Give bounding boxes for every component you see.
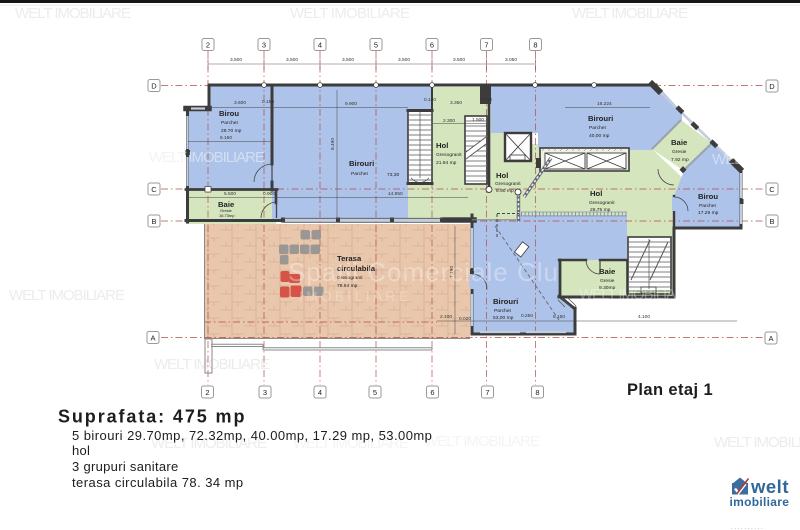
svg-text:7: 7 <box>485 388 489 397</box>
svg-text:26,75 mp: 26,75 mp <box>590 207 611 213</box>
svg-text:6.150: 6.150 <box>553 314 565 320</box>
svg-text:IMOBILIARE: IMOBILIARE <box>299 289 411 304</box>
svg-text:WELT IMOBILIARE: WELT IMOBILIARE <box>572 5 688 22</box>
svg-text:welt: welt <box>750 476 789 497</box>
svg-text:3.500: 3.500 <box>453 57 465 63</box>
svg-text:Birouri: Birouri <box>349 159 374 168</box>
svg-text:Gresie: Gresie <box>672 149 687 155</box>
svg-text:8.90 mp: 8.90 mp <box>496 188 514 194</box>
svg-text:Birouri: Birouri <box>588 114 613 123</box>
svg-text:WELT IMOBILIARE: WELT IMOBILIARE <box>579 286 695 303</box>
svg-text:3.600: 3.600 <box>234 100 246 106</box>
svg-text:WELT IMOBILIARE: WELT IMOBILIARE <box>9 287 125 304</box>
svg-text:B: B <box>151 217 156 226</box>
svg-text:Gresogranit: Gresogranit <box>495 181 521 187</box>
svg-text:21.94 mp: 21.94 mp <box>436 160 457 166</box>
svg-text:WELT IMOBILIARE: WELT IMOBILIARE <box>149 149 265 166</box>
svg-text:Birou: Birou <box>698 192 718 201</box>
svg-text:WELT IMOBILIARE: WELT IMOBILIARE <box>15 5 131 22</box>
svg-text:8: 8 <box>535 388 539 397</box>
svg-text:2: 2 <box>206 41 210 50</box>
svg-text:WELT IMOBILIARE: WELT IMOBILIARE <box>424 433 540 450</box>
svg-text:A: A <box>768 334 773 343</box>
svg-text:Gresie: Gresie <box>600 278 615 284</box>
svg-text:Parchet: Parchet <box>351 171 368 177</box>
svg-text:3.050: 3.050 <box>505 57 517 63</box>
svg-text:6: 6 <box>430 41 434 50</box>
svg-text:C: C <box>769 185 775 194</box>
svg-text:6.150: 6.150 <box>220 135 232 141</box>
svg-text:WELT IMOBILIARE: WELT IMOBILIARE <box>714 434 800 451</box>
svg-text:8: 8 <box>533 41 537 50</box>
svg-text:. . . . . . . . . .: . . . . . . . . . . <box>731 525 763 530</box>
svg-text:Baie: Baie <box>671 138 688 147</box>
svg-text:53,00 mp: 53,00 mp <box>493 315 514 321</box>
svg-text:Suprafata: 475 mp: Suprafata: 475 mp <box>58 407 246 427</box>
svg-text:B: B <box>769 217 774 226</box>
svg-text:16.73mp: 16.73mp <box>219 213 235 218</box>
svg-text:5 birouri 29.70mp, 72.32mp, 4: 5 birouri 29.70mp, 72.32mp, 40.00mp, 17.… <box>72 428 432 443</box>
svg-text:8.490: 8.490 <box>330 138 336 150</box>
svg-text:16.224: 16.224 <box>597 101 612 107</box>
svg-text:Parchet: Parchet <box>699 203 716 209</box>
svg-text:Parchet: Parchet <box>221 120 238 126</box>
svg-text:Baie: Baie <box>599 267 616 276</box>
svg-text:5.500: 5.500 <box>224 191 236 197</box>
svg-text:3: 3 <box>263 388 267 397</box>
svg-text:Parchet: Parchet <box>589 125 606 131</box>
svg-text:Gresogranit: Gresogranit <box>436 152 462 158</box>
svg-text:C: C <box>151 185 157 194</box>
svg-text:terasa circulabila 78. 34 mp: terasa circulabila 78. 34 mp <box>72 475 244 490</box>
svg-text:9.900: 9.900 <box>345 101 357 107</box>
svg-text:A: A <box>150 334 155 343</box>
svg-text:5: 5 <box>373 388 377 397</box>
svg-text:3.500: 3.500 <box>342 57 354 63</box>
svg-text:WELT IMOBILIARE: WELT IMOBILIARE <box>290 5 410 22</box>
svg-text:Parchet: Parchet <box>494 308 511 314</box>
svg-text:7.92 mp: 7.92 mp <box>671 157 689 163</box>
svg-text:D: D <box>769 82 775 91</box>
svg-text:0.150: 0.150 <box>262 99 274 105</box>
svg-text:0.020: 0.020 <box>459 316 471 322</box>
svg-text:3: 3 <box>262 41 266 50</box>
svg-text:Gresogranit: Gresogranit <box>589 200 615 206</box>
svg-text:5: 5 <box>374 41 378 50</box>
svg-text:Hol: Hol <box>590 189 602 198</box>
svg-text:29.70 mp: 29.70 mp <box>221 128 242 134</box>
svg-text:2.100: 2.100 <box>440 314 452 320</box>
svg-text:0.150: 0.150 <box>424 97 436 103</box>
svg-text:0.060: 0.060 <box>480 97 492 103</box>
svg-text:6: 6 <box>430 388 434 397</box>
svg-text:3.500: 3.500 <box>230 57 242 63</box>
svg-text:14.950: 14.950 <box>388 191 403 197</box>
svg-text:Hol: Hol <box>436 141 448 150</box>
svg-text:4: 4 <box>318 388 322 397</box>
svg-text:Spatii Comerciale Clu: Spatii Comerciale Clu <box>288 257 559 287</box>
svg-text:73,30: 73,30 <box>387 172 400 178</box>
svg-text:4: 4 <box>318 41 322 50</box>
svg-text:40,00 mp: 40,00 mp <box>589 133 610 139</box>
svg-text:1.500: 1.500 <box>472 117 484 123</box>
svg-text:3.500: 3.500 <box>286 57 298 63</box>
svg-text:2.300: 2.300 <box>443 118 455 124</box>
svg-text:hol: hol <box>72 443 90 458</box>
svg-text:D: D <box>151 82 157 91</box>
svg-text:0.250: 0.250 <box>521 313 533 319</box>
svg-text:WELT IMOBILIARE: WELT IMOBILIARE <box>712 151 800 168</box>
svg-text:Hol: Hol <box>496 171 508 180</box>
svg-text:3.500: 3.500 <box>398 57 410 63</box>
svg-text:imobiliare: imobiliare <box>730 495 790 509</box>
svg-text:Birouri: Birouri <box>493 297 518 306</box>
svg-text:3.350: 3.350 <box>450 100 462 106</box>
svg-text:17.29 mp: 17.29 mp <box>698 210 719 216</box>
svg-text:4.100: 4.100 <box>638 314 650 320</box>
svg-text:0.900: 0.900 <box>263 191 275 197</box>
svg-text:Plan etaj 1: Plan etaj 1 <box>627 381 713 399</box>
svg-text:Birou: Birou <box>219 109 239 118</box>
svg-text:7: 7 <box>484 41 488 50</box>
svg-text:2: 2 <box>205 388 209 397</box>
svg-text:3 grupuri sanitare: 3 grupuri sanitare <box>72 459 179 474</box>
